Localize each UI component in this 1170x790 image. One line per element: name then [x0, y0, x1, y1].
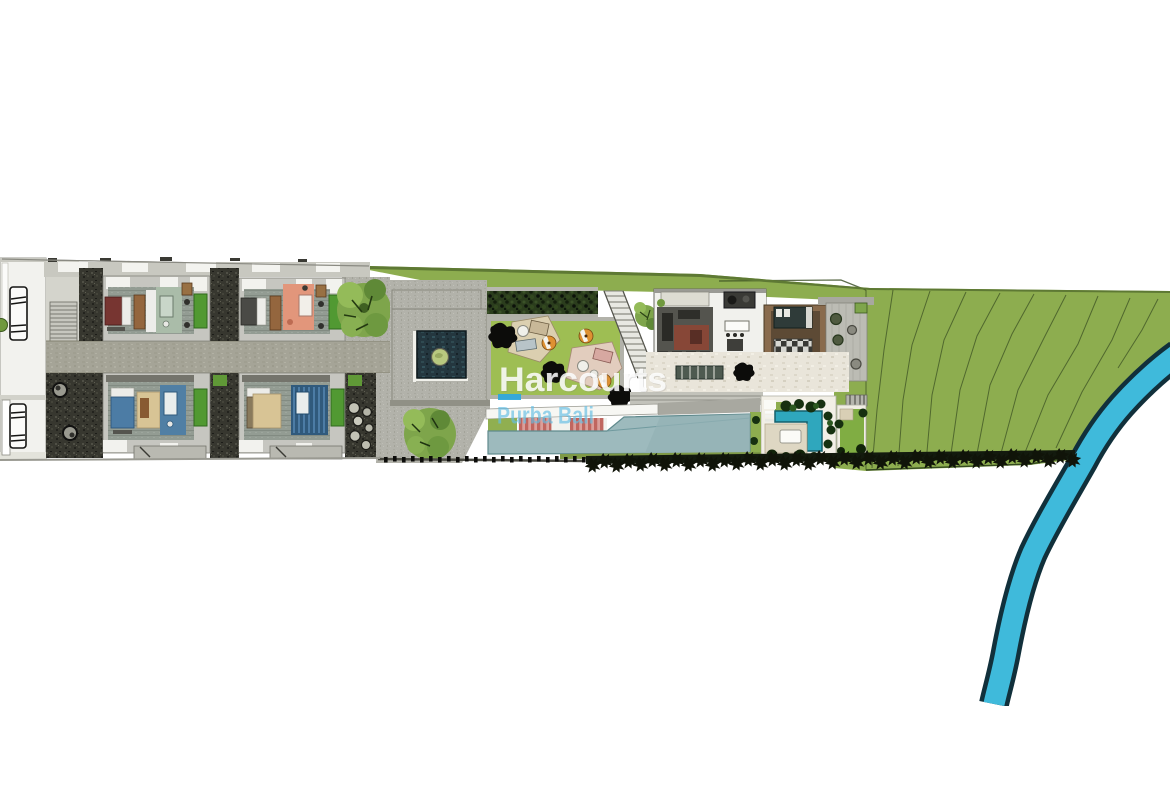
svg-text:Purba Bali: Purba Bali [497, 403, 594, 430]
svg-text:Harcourts: Harcourts [499, 361, 667, 399]
